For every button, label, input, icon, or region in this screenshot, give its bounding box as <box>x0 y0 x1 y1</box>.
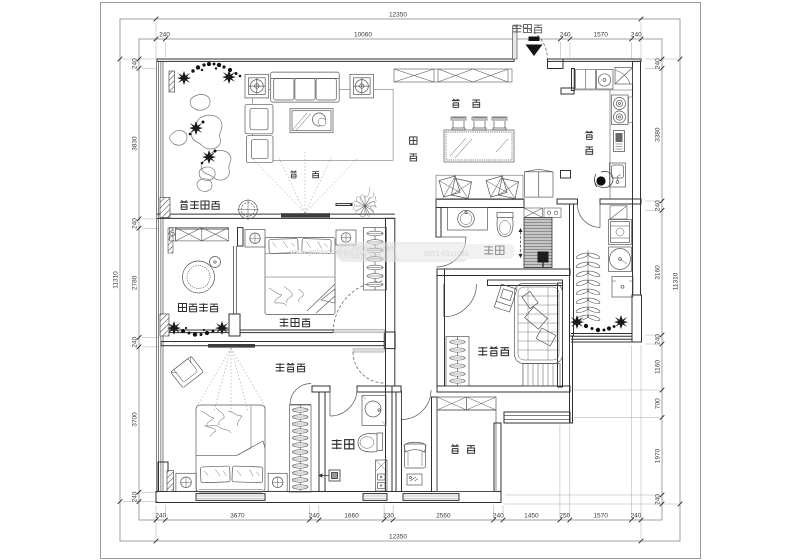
svg-text:12350: 12350 <box>389 534 407 541</box>
svg-text:10060: 10060 <box>354 32 372 39</box>
svg-text:240: 240 <box>309 513 320 520</box>
svg-text:1570: 1570 <box>593 513 608 520</box>
svg-text:240: 240 <box>631 32 642 39</box>
svg-text:1970: 1970 <box>655 448 662 463</box>
svg-text:www.goldenmango.com: www.goldenmango.com <box>289 249 370 256</box>
svg-text:2780: 2780 <box>132 275 139 290</box>
svg-text:12350: 12350 <box>389 12 407 19</box>
svg-text:3670: 3670 <box>230 513 245 520</box>
svg-text:0871-6311888: 0871-6311888 <box>424 251 469 258</box>
svg-text:3700: 3700 <box>132 412 139 427</box>
svg-text:3380: 3380 <box>655 127 662 142</box>
svg-text:240: 240 <box>132 491 139 502</box>
svg-text:240: 240 <box>493 513 504 520</box>
svg-text:11310: 11310 <box>113 271 120 289</box>
svg-text:2560: 2560 <box>436 513 451 520</box>
svg-text:1450: 1450 <box>524 513 539 520</box>
svg-text:700: 700 <box>655 398 662 409</box>
svg-text:240: 240 <box>655 200 662 211</box>
svg-text:240: 240 <box>655 58 662 69</box>
svg-text:250: 250 <box>559 513 570 520</box>
svg-text:230: 230 <box>383 513 394 520</box>
svg-text:3830: 3830 <box>132 136 139 151</box>
svg-text:1660: 1660 <box>344 513 359 520</box>
svg-text:240: 240 <box>132 218 139 229</box>
svg-text:240: 240 <box>132 336 139 347</box>
svg-text:11310: 11310 <box>673 272 680 290</box>
svg-text:240: 240 <box>560 32 571 39</box>
svg-text:3160: 3160 <box>655 265 662 280</box>
svg-text:1570: 1570 <box>593 32 608 39</box>
svg-text:1160: 1160 <box>655 360 662 374</box>
svg-text:240: 240 <box>155 513 166 520</box>
svg-text:240: 240 <box>655 494 662 505</box>
svg-text:240: 240 <box>132 58 139 69</box>
svg-text:240: 240 <box>655 334 662 345</box>
svg-text:240: 240 <box>159 32 170 39</box>
svg-text:240: 240 <box>631 513 642 520</box>
